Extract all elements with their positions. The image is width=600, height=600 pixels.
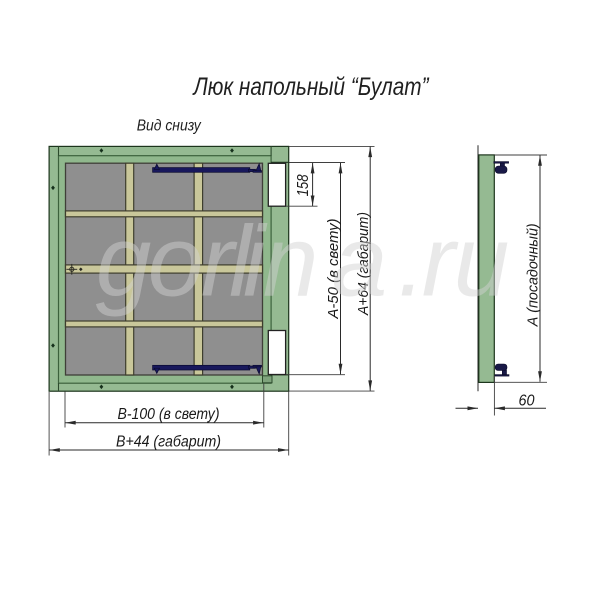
svg-text:158: 158 bbox=[295, 174, 312, 196]
svg-text:В-100 (в свету): В-100 (в свету) bbox=[118, 406, 220, 423]
svg-text:60: 60 bbox=[519, 393, 535, 410]
svg-text:Вид снизу: Вид снизу bbox=[137, 118, 202, 135]
svg-text:gorlina.ru: gorlina.ru bbox=[96, 206, 510, 318]
svg-text:А (посадочный): А (посадочный) bbox=[525, 223, 542, 327]
svg-text:В+44 (габарит): В+44 (габарит) bbox=[116, 434, 221, 451]
svg-text:Люк напольный “Булат”: Люк напольный “Булат” bbox=[192, 73, 430, 101]
